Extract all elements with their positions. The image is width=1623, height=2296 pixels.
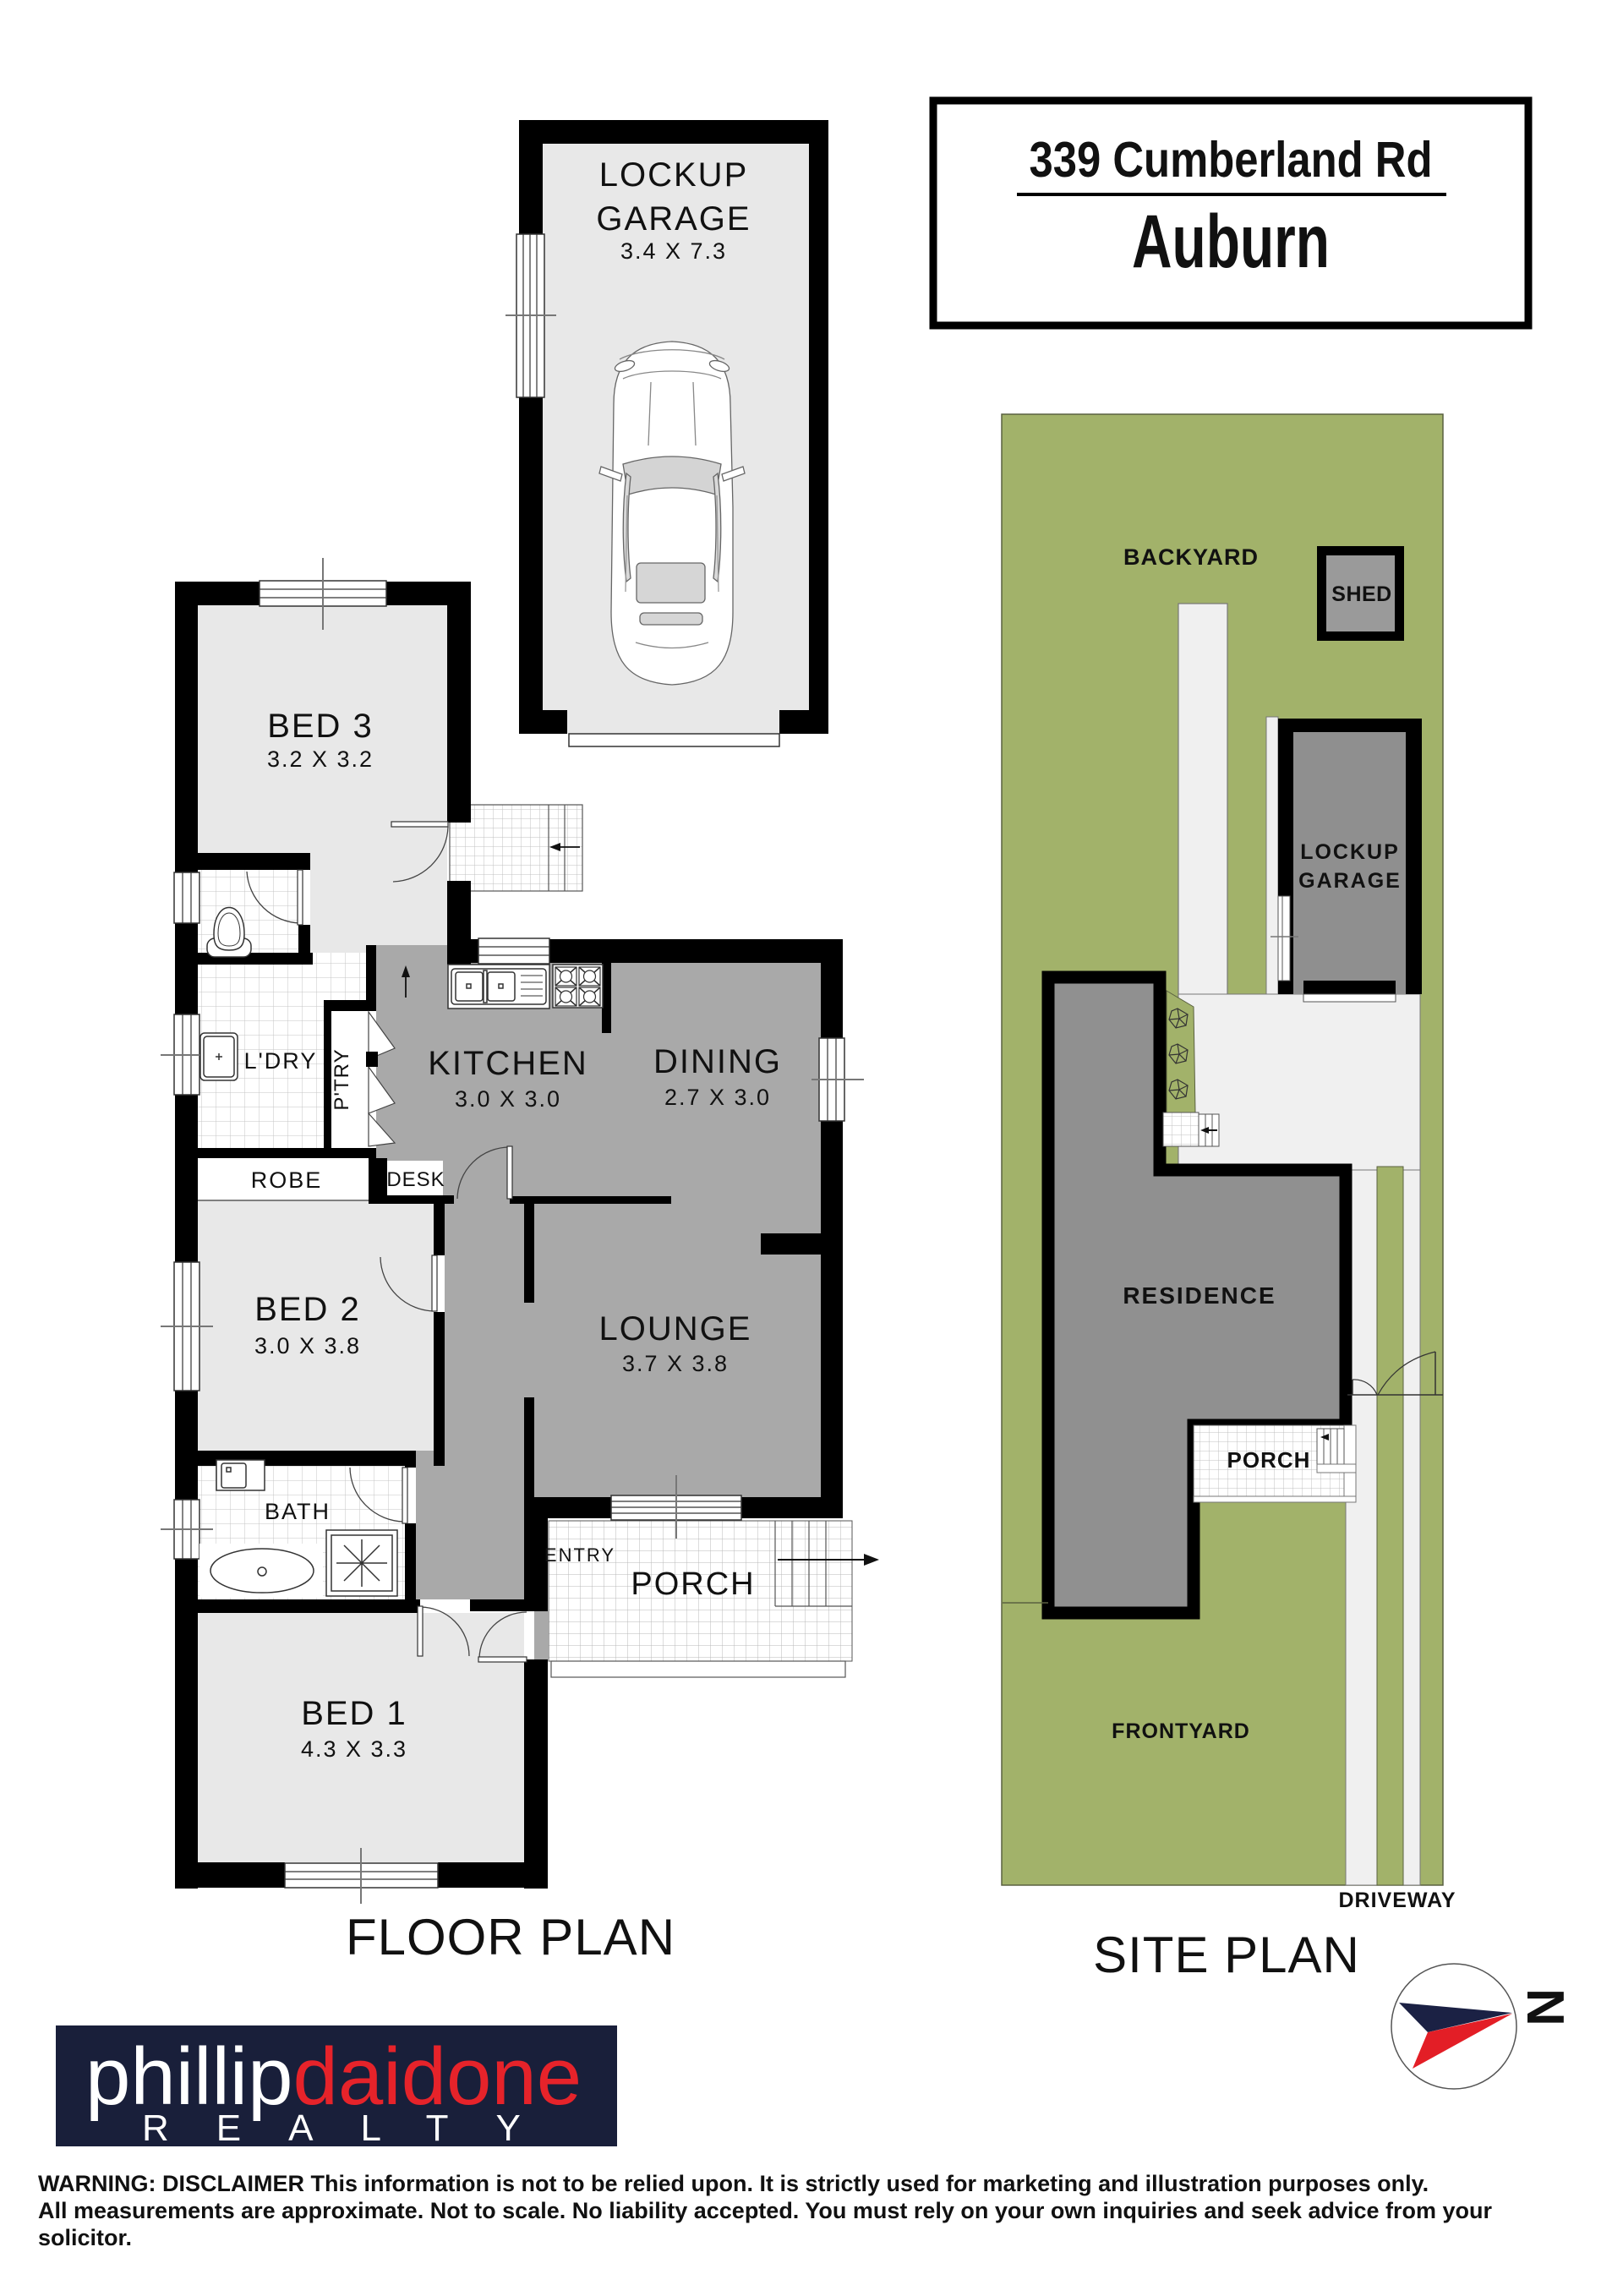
svg-text:FRONTYARD: FRONTYARD	[1112, 1719, 1250, 1743]
svg-text:ROBE: ROBE	[251, 1167, 323, 1193]
svg-text:PORCH: PORCH	[1227, 1447, 1311, 1473]
svg-text:solicitor.: solicitor.	[38, 2225, 132, 2250]
svg-text:3.0 X 3.8: 3.0 X 3.8	[254, 1333, 361, 1358]
svg-text:SITE PLAN: SITE PLAN	[1093, 1927, 1360, 1983]
svg-text:P'TRY: P'TRY	[331, 1048, 353, 1110]
svg-text:All measurements are approxima: All measurements are approximate. Not to…	[38, 2198, 1493, 2223]
svg-text:3.2 X 3.2: 3.2 X 3.2	[267, 746, 374, 772]
svg-text:RESIDENCE: RESIDENCE	[1123, 1282, 1276, 1309]
svg-text:REALTY: REALTY	[142, 2107, 568, 2149]
svg-text:FLOOR PLAN: FLOOR PLAN	[346, 1909, 675, 1965]
svg-text:LOCKUP: LOCKUP	[1300, 840, 1400, 864]
svg-text:ENTRY: ENTRY	[544, 1544, 615, 1566]
svg-text:3.7 X 3.8: 3.7 X 3.8	[622, 1351, 729, 1376]
svg-text:DESK: DESK	[386, 1168, 445, 1191]
svg-text:N: N	[1516, 1988, 1574, 2026]
svg-text:BACKYARD: BACKYARD	[1123, 544, 1259, 570]
svg-text:BATH: BATH	[265, 1499, 331, 1524]
svg-text:DINING: DINING	[653, 1043, 782, 1080]
svg-text:4.3 X 3.3: 4.3 X 3.3	[301, 1736, 407, 1762]
svg-text:L'DRY: L'DRY	[244, 1048, 318, 1074]
svg-text:BED 3: BED 3	[267, 708, 374, 745]
svg-text:DRIVEWAY: DRIVEWAY	[1338, 1889, 1456, 1912]
svg-text:PORCH: PORCH	[631, 1566, 755, 1602]
svg-text:BED 2: BED 2	[254, 1291, 361, 1328]
svg-text:2.7 X 3.0: 2.7 X 3.0	[664, 1085, 771, 1110]
svg-text:339 Cumberland Rd: 339 Cumberland Rd	[1030, 132, 1433, 188]
svg-text:GARAGE: GARAGE	[1298, 869, 1402, 893]
svg-text:KITCHEN: KITCHEN	[428, 1045, 588, 1082]
svg-text:LOCKUP: LOCKUP	[599, 156, 749, 194]
svg-text:Auburn: Auburn	[1132, 199, 1330, 283]
svg-text:3.4 X 7.3: 3.4 X 7.3	[620, 238, 727, 264]
svg-text:BED 1: BED 1	[301, 1695, 407, 1732]
svg-text:GARAGE: GARAGE	[596, 200, 751, 238]
svg-text:SHED: SHED	[1331, 582, 1391, 606]
svg-text:LOUNGE: LOUNGE	[599, 1310, 752, 1348]
svg-text:3.0 X 3.0: 3.0 X 3.0	[455, 1086, 561, 1112]
svg-text:WARNING: DISCLAIMER This infor: WARNING: DISCLAIMER This information is …	[38, 2171, 1429, 2196]
